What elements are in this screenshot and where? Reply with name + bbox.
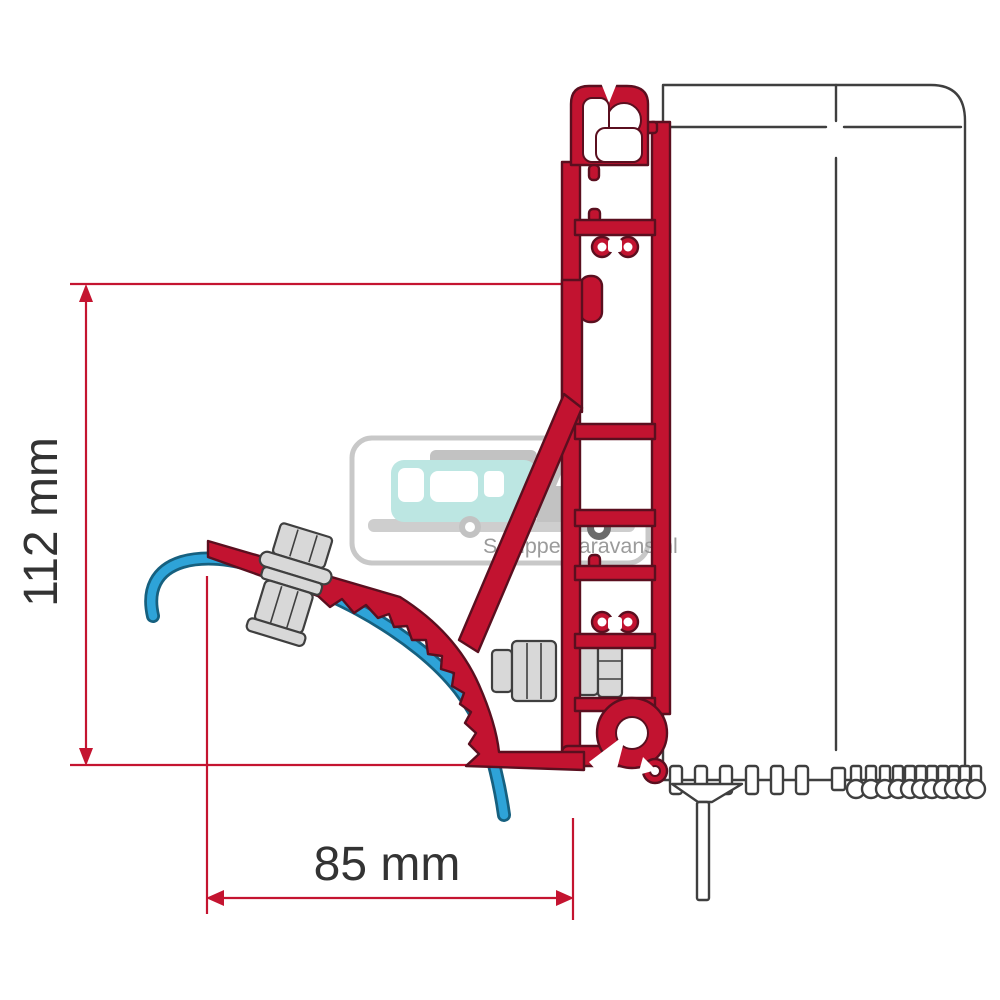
rail-right-wall [652,122,670,714]
case-ring-hooks [847,766,985,798]
crank-rod [672,784,742,900]
rail-left-wall [562,162,580,764]
vertical-bolt [239,519,343,649]
height-dimension-label: 112 mm [15,437,68,607]
horizontal-bolt [492,641,622,701]
bracket-top-hook [580,276,602,322]
rail-top-hook [571,83,648,180]
technical-diagram: Schippercaravans.nl 112 mm 85 mm [0,0,1000,1000]
awning-case-outline [663,85,985,900]
bracket-vertical-plate [562,280,582,412]
width-dimension-label: 85 mm [314,838,461,891]
diagram-canvas: Schippercaravans.nl 112 mm 85 mm [0,0,1000,1000]
